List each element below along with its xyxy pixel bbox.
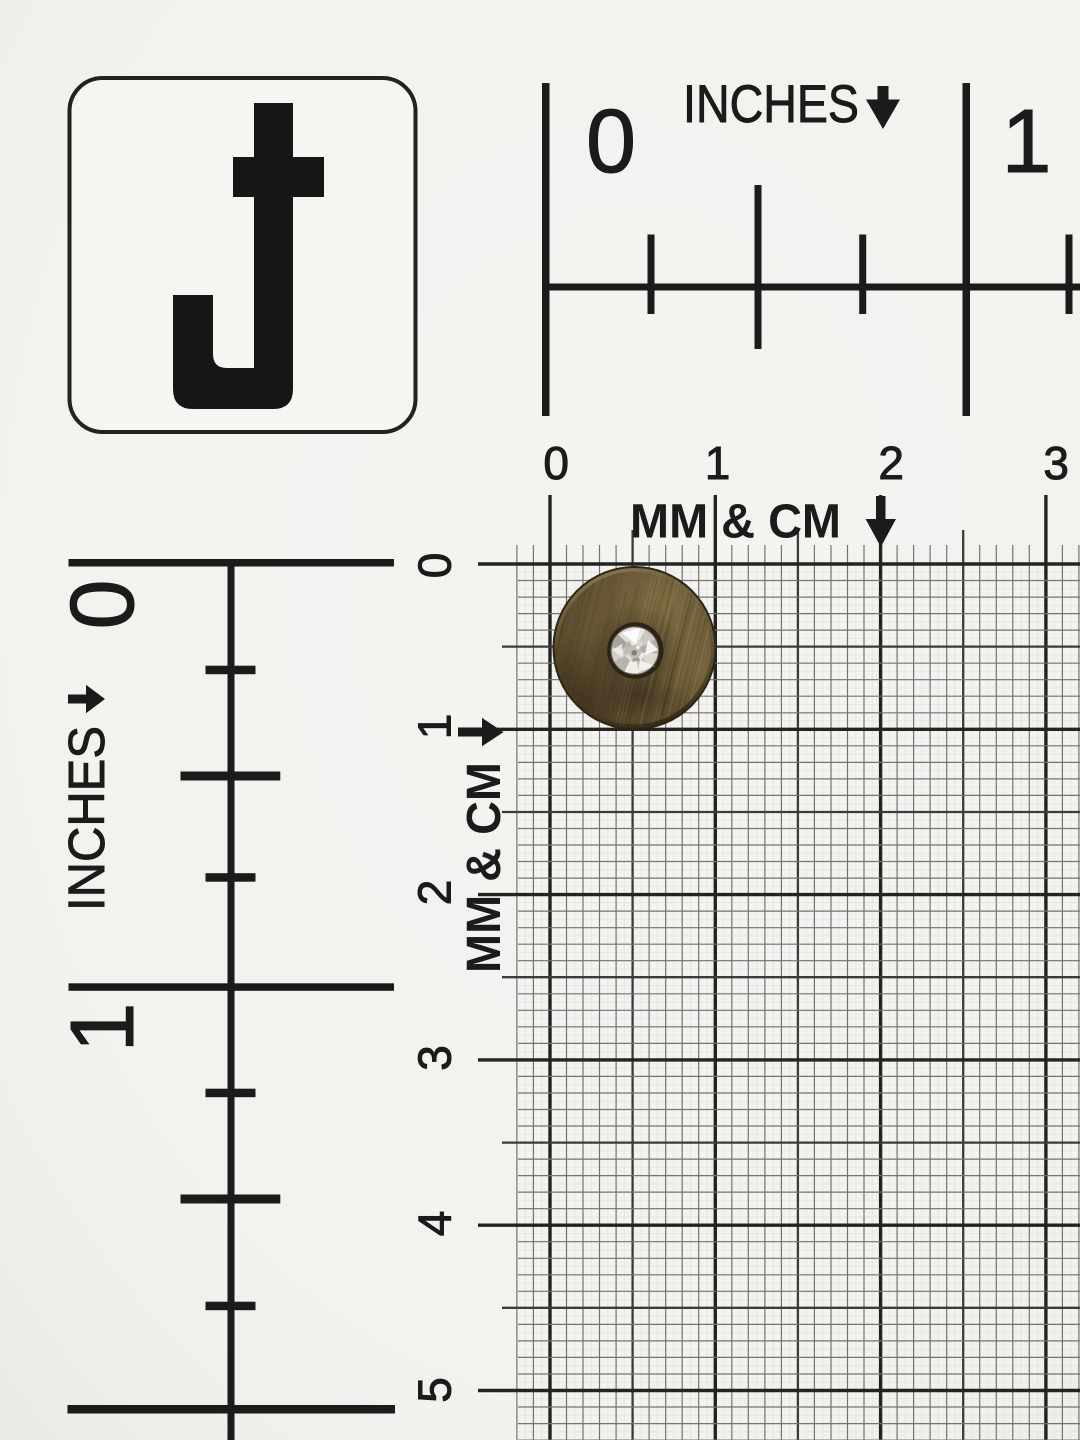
svg-text:0: 0 xyxy=(586,92,636,192)
svg-text:3: 3 xyxy=(1043,437,1069,489)
svg-text:2: 2 xyxy=(409,880,461,906)
svg-text:1: 1 xyxy=(1001,92,1051,192)
svg-text:0: 0 xyxy=(543,437,569,489)
svg-text:INCHES: INCHES xyxy=(58,726,115,911)
svg-text:5: 5 xyxy=(409,1377,461,1403)
svg-text:3: 3 xyxy=(409,1045,461,1071)
svg-text:0: 0 xyxy=(53,579,153,629)
svg-text:4: 4 xyxy=(409,1211,461,1237)
svg-text:0: 0 xyxy=(409,553,461,579)
svg-text:INCHES: INCHES xyxy=(683,75,859,134)
svg-text:2: 2 xyxy=(878,437,904,489)
svg-text:1: 1 xyxy=(409,714,461,740)
svg-text:MM & CM: MM & CM xyxy=(630,496,841,549)
svg-text:MM & CM: MM & CM xyxy=(458,762,511,973)
svg-text:1: 1 xyxy=(53,1002,153,1052)
svg-text:1: 1 xyxy=(705,437,731,489)
